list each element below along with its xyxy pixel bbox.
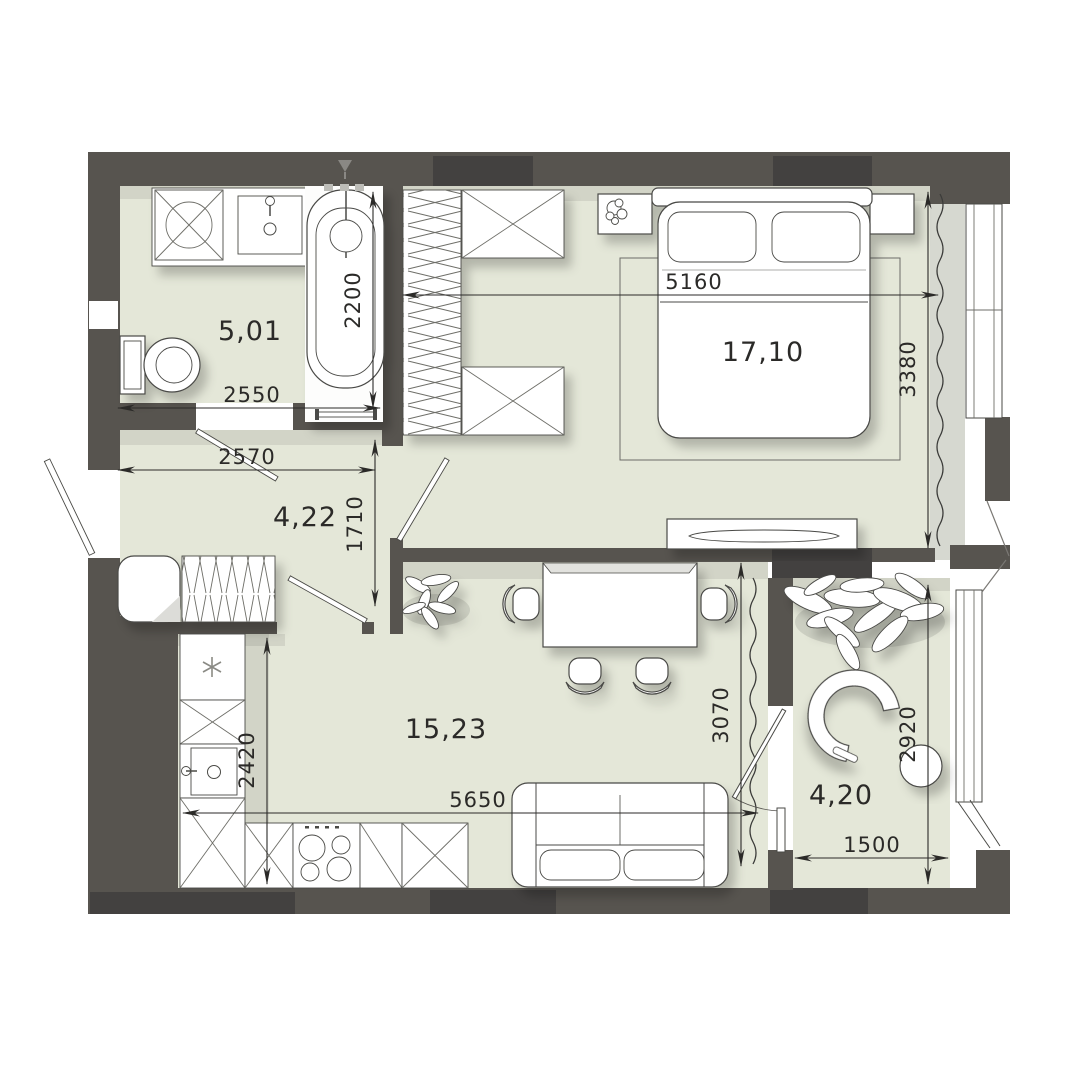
wall-window-pier-right: [985, 417, 1010, 501]
dim-bathroom-width: 2550: [223, 383, 280, 407]
kitchen-cabinet-2: [180, 798, 245, 888]
dim-bedroom-width: 5160: [665, 270, 722, 294]
stove: [293, 823, 360, 888]
coat-rack: [182, 556, 275, 622]
wall-hall-bottom: [155, 622, 277, 634]
sofa-cushion: [624, 850, 704, 880]
bedroom-window-recess: [930, 186, 965, 560]
room-label-bedroom: 17,10: [722, 337, 804, 368]
dim-hallway-depth: 1710: [343, 495, 367, 552]
wall-top-right: [930, 152, 1010, 204]
toilet: [120, 336, 200, 394]
wall-bedroom-door-post: [390, 538, 403, 634]
balcony-window: [956, 560, 1006, 848]
wall-pier-bottom-1: [90, 892, 295, 914]
washing-machine: [155, 190, 223, 260]
dining-table: [543, 563, 697, 647]
wall-stub-bottom-right: [976, 850, 1010, 914]
room-label-bathroom: 5,01: [218, 316, 282, 347]
bedroom-window: [966, 204, 1009, 556]
fridge: [180, 634, 245, 700]
wall-left-lower: [88, 558, 120, 914]
wall-bedroom-south-pier: [772, 548, 872, 578]
sofa: [512, 783, 728, 887]
nightstand-right: [870, 194, 914, 234]
dim-hallway-width: 2570: [218, 445, 275, 469]
pillow-right: [772, 212, 860, 262]
bathroom-sink: [238, 196, 302, 254]
tv-console: [667, 519, 857, 549]
entry-opening: [88, 470, 120, 558]
floor-plan-svg: 2550 2200 2570 1710 5160 3380 2420 5650 …: [0, 0, 1080, 1080]
entry-door: [44, 459, 94, 555]
wall-bathroom-bottom-left: [88, 403, 196, 430]
wall-pier-bottom-2: [430, 890, 556, 914]
bedroom-door-opening: [382, 446, 403, 538]
sofa-cushion: [540, 850, 620, 880]
wardrobe-cabinet-top: [462, 190, 564, 258]
wall-balcony-top-right: [950, 545, 1010, 569]
kitchen-cabinet-4: [402, 823, 468, 888]
dim-balcony-width: 1500: [843, 833, 900, 857]
hall-furniture: [118, 556, 275, 622]
kitchen-cabinet-3: [360, 823, 402, 888]
pillow-left: [668, 212, 756, 262]
tv: [689, 530, 839, 542]
wall-niche: [89, 301, 118, 329]
wall-balcony-partition-bottom: [768, 850, 793, 890]
wall-pier-top-1: [433, 156, 533, 186]
bench: [118, 556, 180, 622]
room-label-living-kitchen: 15,23: [405, 714, 487, 745]
dim-balcony-depth: 2920: [896, 705, 920, 762]
bed: [652, 188, 872, 438]
room-label-balcony: 4,20: [809, 780, 873, 811]
wall-kitchen-shaft: [120, 616, 178, 914]
wall-bedroom-door-pier: [382, 430, 403, 446]
dim-living-depth: 3070: [709, 686, 733, 743]
dim-kitchen-depth: 2420: [235, 731, 259, 788]
balcony-side-glass: [777, 808, 785, 852]
dim-bedroom-depth: 3380: [896, 340, 920, 397]
dim-bathtub-length: 2200: [341, 271, 365, 328]
room-label-hallway: 4,22: [273, 502, 337, 533]
wall-pier-bottom-3: [770, 888, 868, 914]
living-door-hinge-block: [362, 622, 374, 634]
kitchen-cabinet-corner: [245, 823, 293, 888]
bathroom-door-opening: [196, 403, 293, 430]
wardrobe-cabinet-bottom: [462, 367, 564, 435]
wall-pier-top-2: [773, 156, 872, 186]
wall-bathroom-right: [382, 186, 403, 430]
floor-plan: 2550 2200 2570 1710 5160 3380 2420 5650 …: [0, 0, 1080, 1080]
dim-living-width: 5650: [449, 788, 506, 812]
